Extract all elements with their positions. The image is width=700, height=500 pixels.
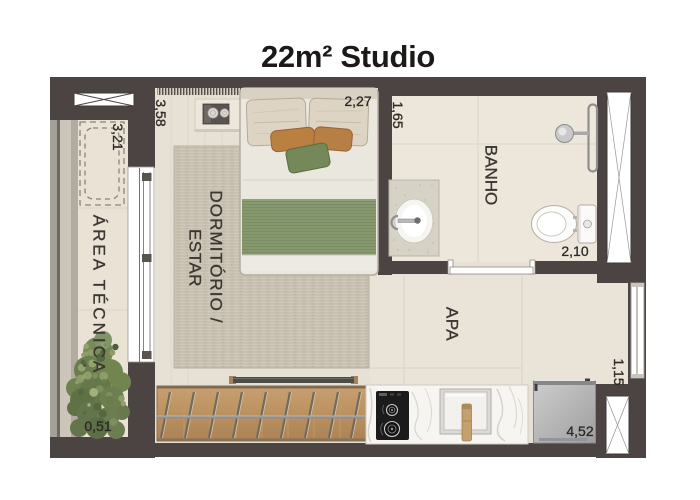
svg-text:3,58: 3,58 — [153, 99, 169, 126]
svg-text:APA: APA — [443, 307, 462, 341]
svg-text:2,10: 2,10 — [561, 243, 588, 259]
svg-text:1,65: 1,65 — [390, 101, 406, 128]
svg-text:2,27: 2,27 — [344, 93, 371, 109]
svg-text:4,52: 4,52 — [566, 423, 593, 439]
svg-text:22m² Studio: 22m² Studio — [261, 39, 435, 74]
svg-text:1,15: 1,15 — [611, 358, 627, 385]
svg-text:3,21: 3,21 — [110, 123, 126, 150]
svg-text:0,51: 0,51 — [84, 418, 111, 434]
svg-text:ESTAR: ESTAR — [186, 229, 205, 287]
svg-text:BANHO: BANHO — [482, 145, 501, 205]
svg-text:ÁREA TÉCNICA: ÁREA TÉCNICA — [90, 215, 109, 375]
svg-text:DORMITÓRIO /: DORMITÓRIO / — [207, 190, 226, 323]
